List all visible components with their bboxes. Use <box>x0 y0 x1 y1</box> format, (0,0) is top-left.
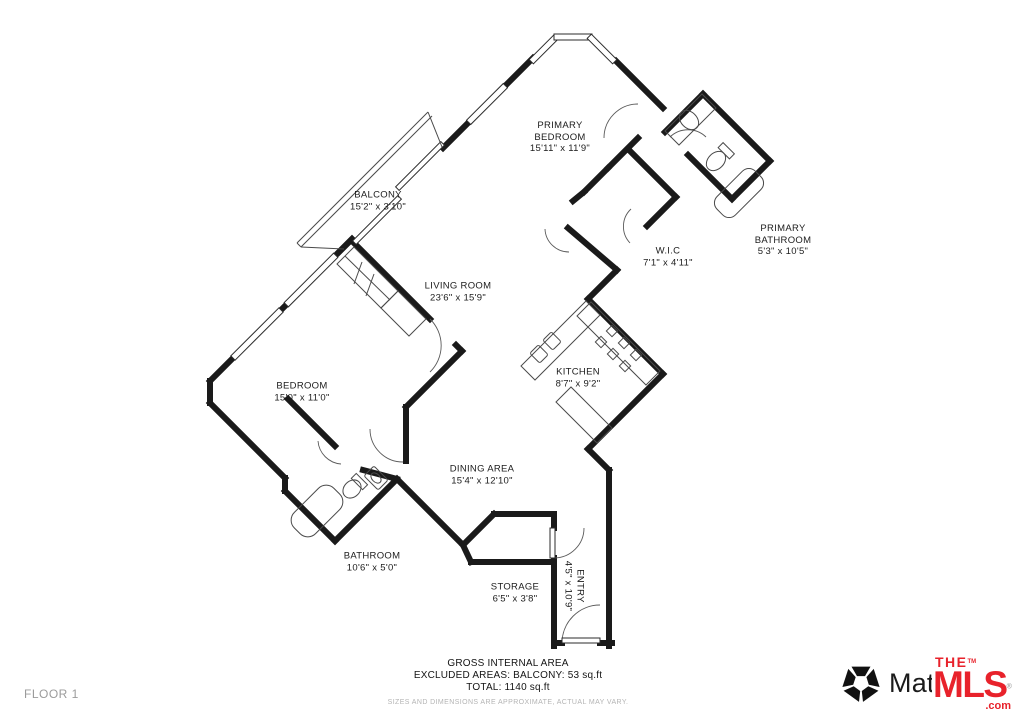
label-bathroom: BATHROOM 10'6" x 5'0" <box>344 551 401 574</box>
branding: Matterport THETM MLS® .com <box>832 650 1018 720</box>
total-area: TOTAL: 1140 sq.ft <box>388 682 629 694</box>
area-summary: GROSS INTERNAL AREA EXCLUDED AREAS: BALC… <box>388 658 629 709</box>
floor-label: FLOOR 1 <box>24 687 79 701</box>
label-entry: ENTRY 4'5" x 10'9" <box>563 561 586 611</box>
wardrobe <box>337 247 426 336</box>
label-dining-area: DINING AREA 15'4" x 12'10" <box>450 464 515 487</box>
label-storage: STORAGE 6'5" x 3'8" <box>491 582 539 605</box>
themls-word: MLS® <box>933 669 1015 703</box>
label-primary-bedroom: PRIMARY BEDROOM 15'11" x 11'9" <box>530 120 590 155</box>
primary-bathroom-fixtures <box>665 94 767 221</box>
label-primary-bathroom: PRIMARY BATHROOM 5'3" x 10'5" <box>755 223 812 258</box>
label-kitchen: KITCHEN 8'7" x 9'2" <box>556 367 601 390</box>
matterport-icon <box>840 662 882 704</box>
label-balcony: BALCONY 15'2" x 3'10" <box>350 190 406 213</box>
excluded-areas: EXCLUDED AREAS: BALCONY: 53 sq.ft <box>388 670 629 682</box>
label-bedroom: BEDROOM 15'0" x 11'0" <box>274 381 329 404</box>
label-wic: W.I.C 7'1" x 4'11" <box>643 246 693 269</box>
themls-logo: THETM MLS® .com <box>932 652 1015 718</box>
label-living-room: LIVING ROOM 23'6" x 15'9" <box>425 281 492 304</box>
walls <box>210 58 770 646</box>
disclaimer: SIZES AND DIMENSIONS ARE APPROXIMATE, AC… <box>388 697 629 709</box>
registered-mark: ® <box>1007 684 1012 691</box>
gross-internal-area: GROSS INTERNAL AREA <box>388 658 629 670</box>
floor-plan-drawing <box>0 0 1018 720</box>
floor-plan-page: PRIMARY BEDROOM 15'11" x 11'9" BALCONY 1… <box>0 0 1018 720</box>
